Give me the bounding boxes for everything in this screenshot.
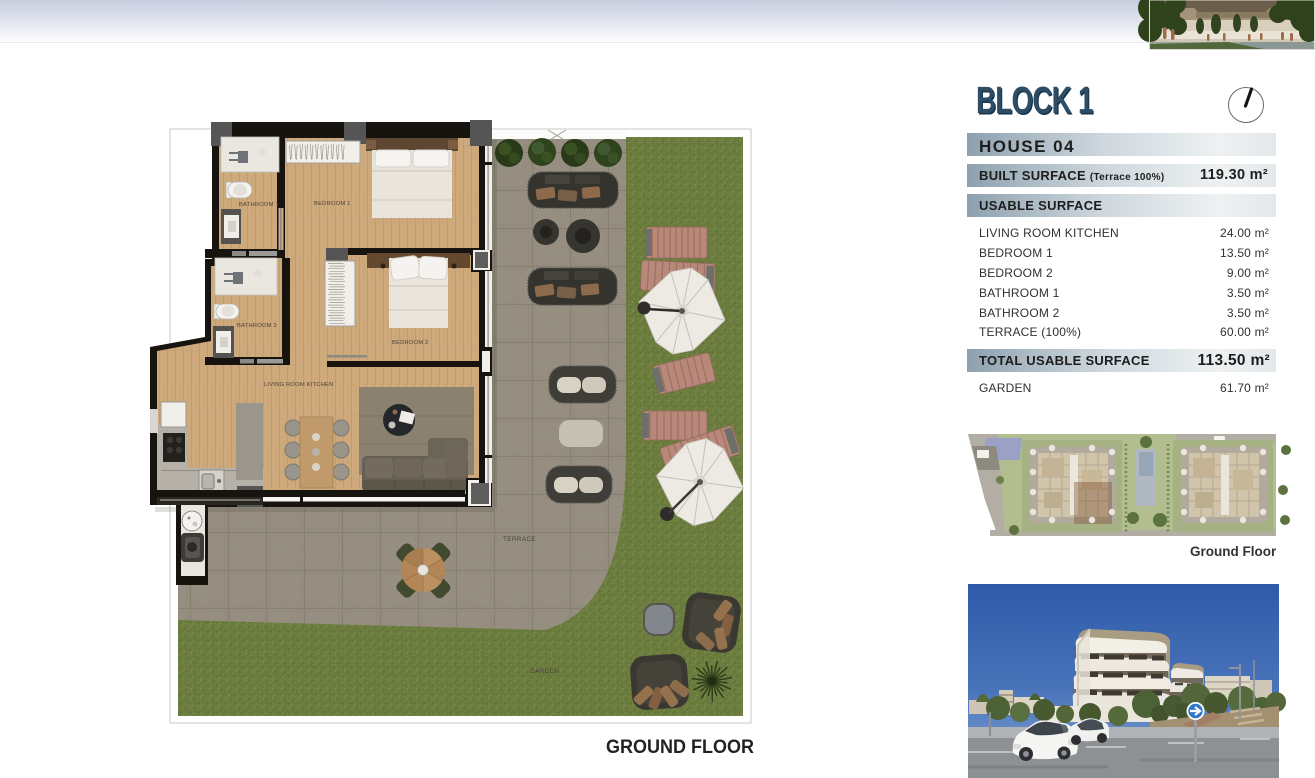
svg-text:BEDROOM 1: BEDROOM 1 [314, 201, 351, 207]
svg-text:GARDEN: GARDEN [530, 668, 559, 675]
svg-text:BATHROOM 2: BATHROOM 2 [237, 323, 277, 329]
svg-text:TERRACE: TERRACE [503, 536, 536, 543]
svg-text:BATHROOM 1: BATHROOM 1 [239, 202, 279, 208]
svg-text:GROUND FLOOR: GROUND FLOOR [606, 737, 754, 758]
svg-text:BEDROOM 2: BEDROOM 2 [392, 340, 429, 346]
svg-text:LIVING ROOM KITCHEN: LIVING ROOM KITCHEN [264, 382, 334, 388]
